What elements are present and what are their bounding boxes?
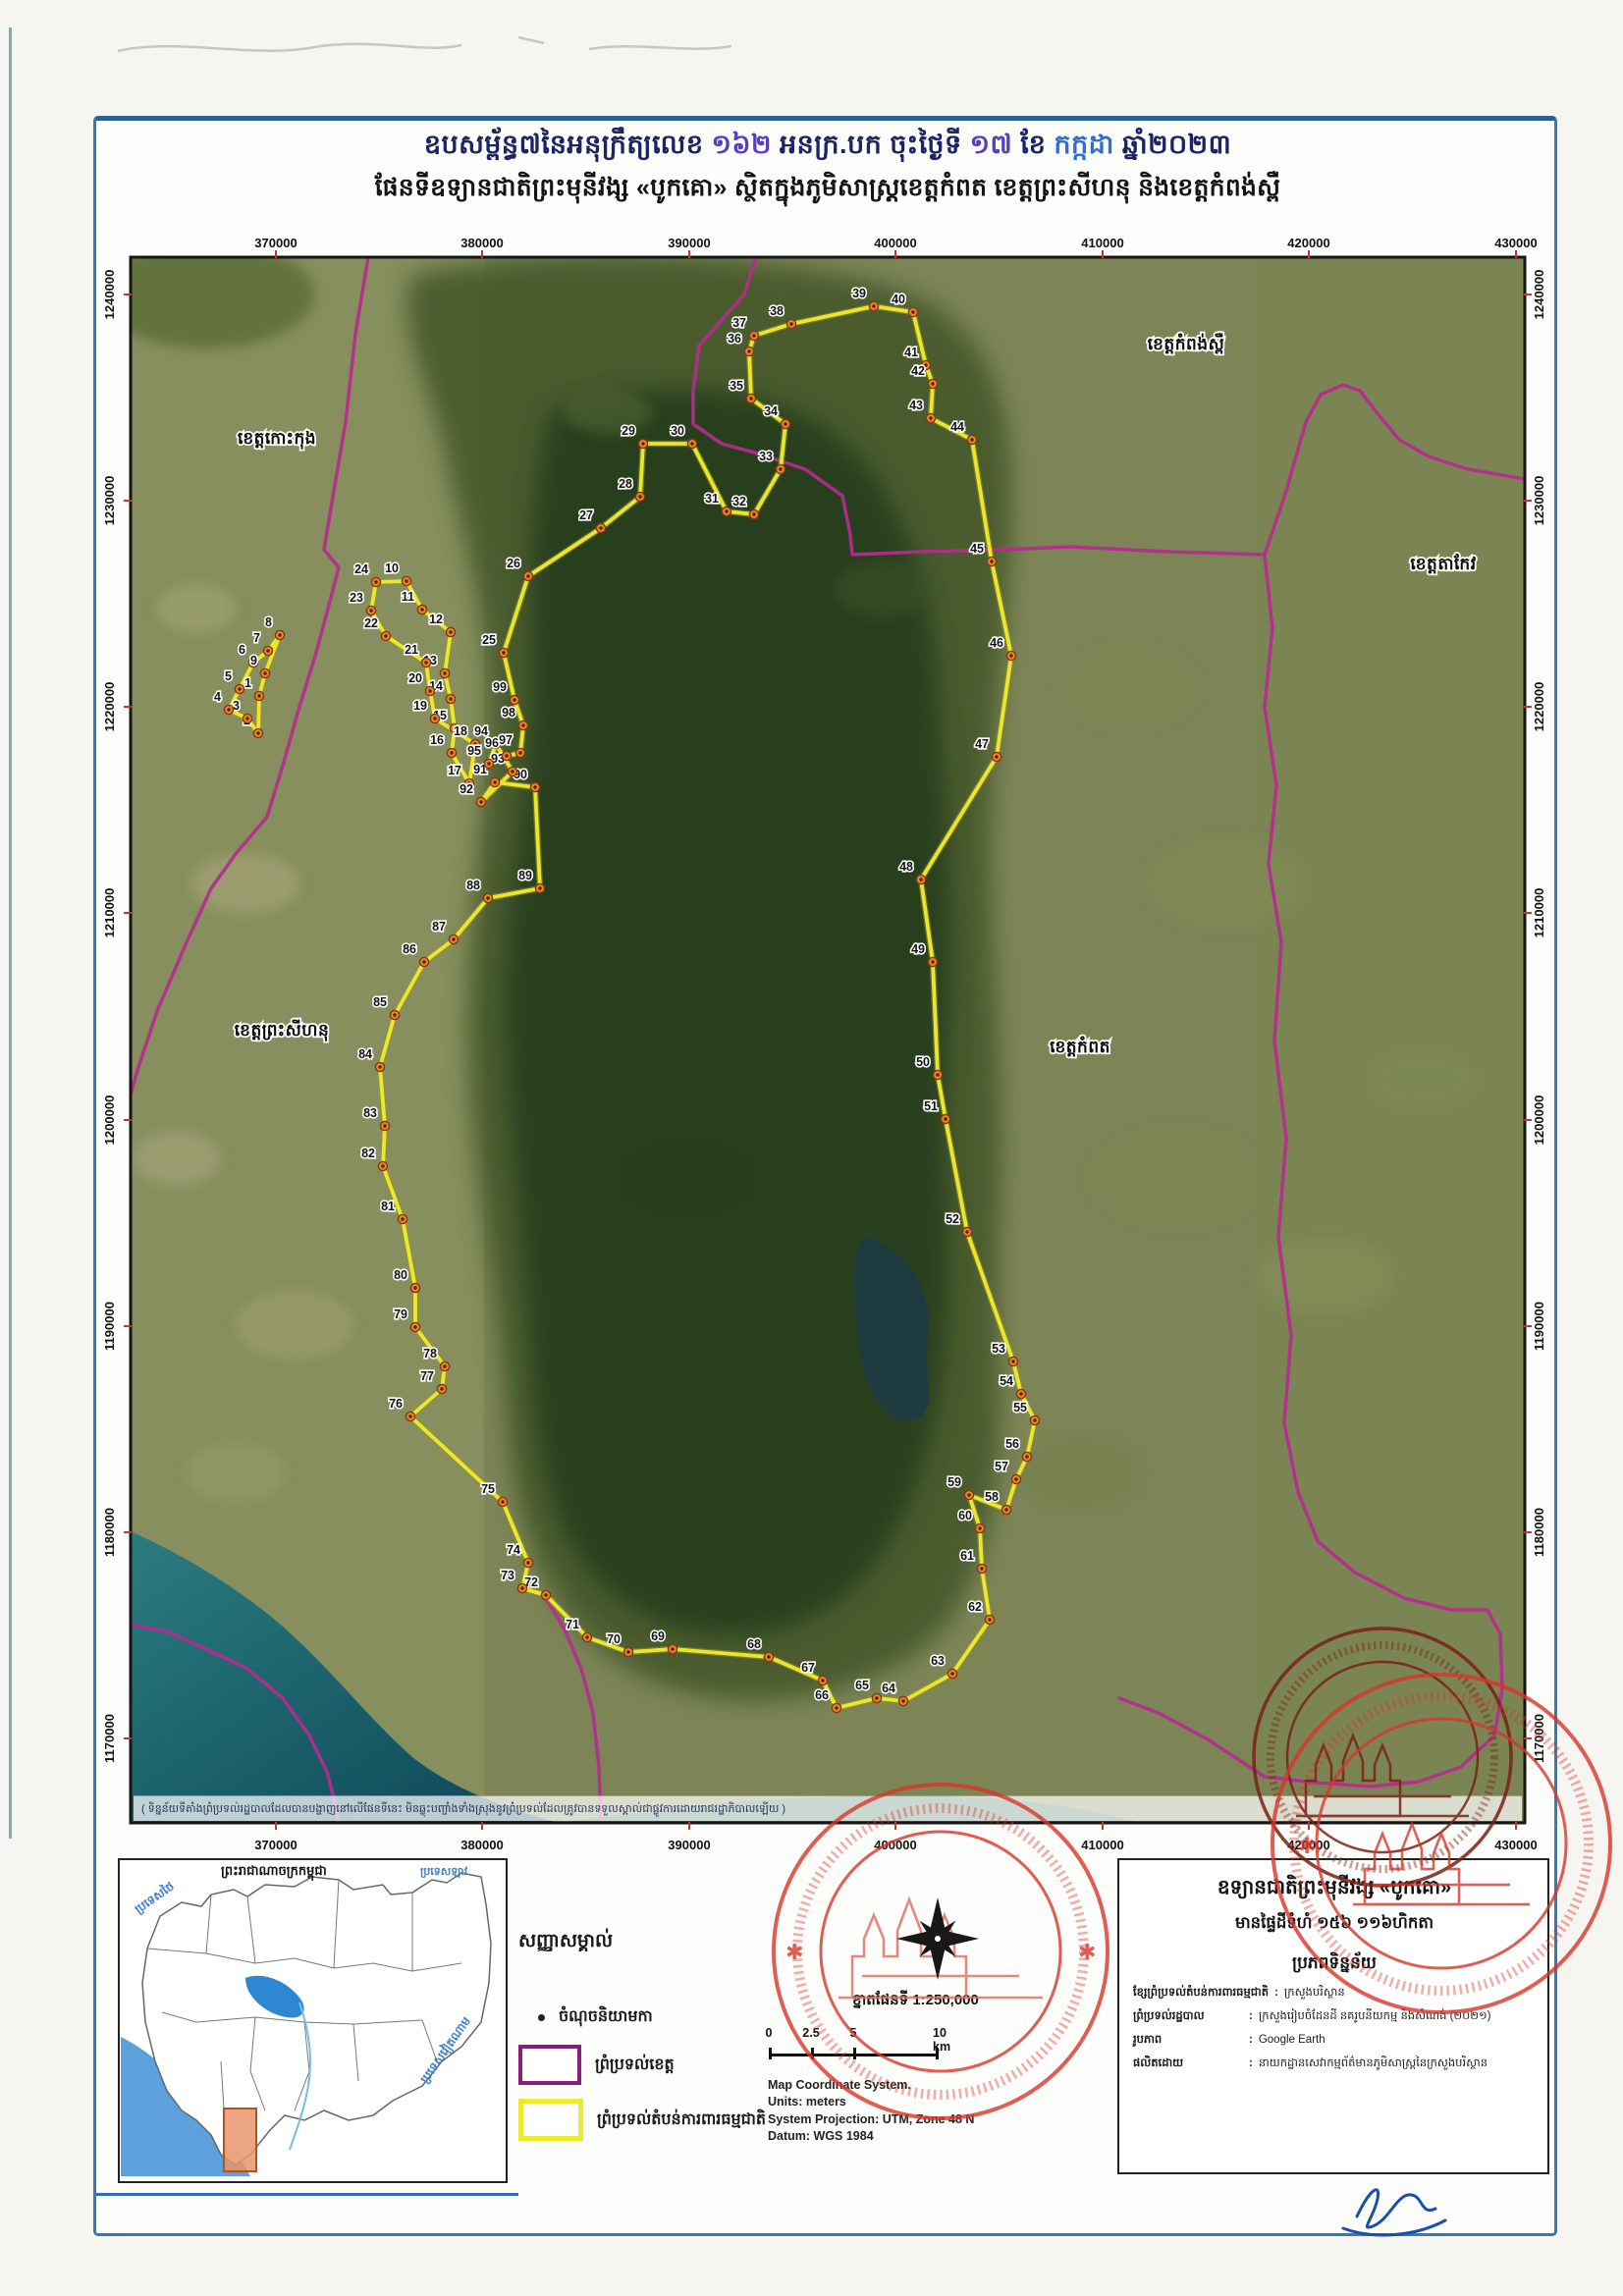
y-axis-label: 1180000 (1532, 1508, 1546, 1557)
province-label: ខេត្តតាកែវ (1410, 553, 1476, 574)
boundary-point-label: 52 (946, 1212, 959, 1226)
boundary-point-label: 56 (1005, 1437, 1019, 1451)
boundary-point-label: 53 (992, 1342, 1005, 1356)
boundary-point-label: 43 (909, 399, 923, 412)
boundary-point-label: 61 (960, 1549, 974, 1563)
y-axis-label: 1200000 (102, 1095, 117, 1146)
boundary-point-label: 62 (968, 1600, 982, 1614)
boundary-point-core (1033, 1418, 1036, 1421)
boundary-point-core (725, 509, 728, 512)
boundary-point-label: 19 (413, 699, 427, 713)
data-source-header: ប្រភពទិន្នន័យ (1133, 1952, 1536, 1977)
y-axis-label: 1200000 (1532, 1095, 1546, 1146)
province-label: ខេត្តកំពត (1050, 1036, 1110, 1057)
boundary-point-label: 24 (354, 562, 368, 576)
boundary-point-core (538, 886, 541, 889)
province-label: ខេត្តកោះកុង (238, 429, 316, 450)
boundary-point-core (544, 1593, 547, 1596)
x-axis-label: 380000 (460, 236, 503, 250)
source-value: ក្រសួងបរិស្ថាន (1284, 1986, 1536, 2001)
boundary-point-label: 25 (482, 633, 496, 647)
boundary-point-core (599, 526, 602, 529)
boundary-point-label: 78 (423, 1347, 437, 1361)
boundary-point-label: 34 (764, 404, 778, 418)
boundary-point-label: 75 (481, 1482, 495, 1496)
y-axis-label: 1230000 (102, 476, 117, 526)
boundary-point-label: 73 (501, 1569, 514, 1582)
boundary-point-core (641, 442, 644, 445)
y-axis-label: 1210000 (1532, 888, 1546, 938)
boundary-point-label: 22 (364, 616, 378, 630)
boundary-point-core (433, 717, 436, 720)
boundary-point-label: 67 (801, 1661, 815, 1675)
boundary-point-core (752, 512, 755, 515)
boundary-point-core (518, 751, 521, 754)
source-row-admin-boundary: ព្រំប្រទល់រដ្ឋបាល : ក្រសួងរៀបចំដែនដី នគរ… (1133, 2009, 1536, 2024)
boundary-point-core (901, 1699, 904, 1702)
scale-bar: 0 2.5 5 10 km (769, 2026, 965, 2061)
boundary-point-core (1009, 654, 1012, 657)
x-axis-label: 410000 (1081, 236, 1123, 250)
boundary-point-label: 86 (403, 942, 416, 956)
source-value: នាយកដ្ឋានសេវាកម្មព័ត៌មានភូមិសាស្ត្រនៃក្រ… (1259, 2056, 1536, 2071)
survey-point-icon (538, 2014, 545, 2021)
boundary-point-label: 12 (429, 613, 443, 626)
boundary-point-label: 69 (651, 1629, 665, 1643)
boundary-point-core (671, 1647, 674, 1650)
boundary-point-core (990, 560, 993, 562)
boundary-point-core (749, 397, 752, 400)
legend-item-protected-boundary: ព្រំប្រទល់តំបន់ការពារធម្មជាតិ (518, 2099, 766, 2141)
boundary-point-core (384, 634, 387, 637)
boundary-point-core (872, 304, 875, 307)
boundary-point-core (422, 960, 425, 963)
boundary-point-core (626, 1650, 629, 1653)
boundary-point-core (875, 1696, 878, 1699)
boundary-point-label: 21 (405, 643, 418, 657)
boundary-point-core (413, 1325, 416, 1328)
boundary-point-label: 4 (214, 690, 221, 704)
boundary-point-core (381, 1164, 384, 1167)
boundary-point-label: 42 (911, 364, 925, 378)
boundary-point-core (911, 310, 914, 313)
boundary-point-label: 37 (732, 316, 746, 330)
y-axis-label: 1180000 (102, 1508, 117, 1557)
boundary-point-core (1014, 1477, 1017, 1480)
y-axis-label: 1170000 (1532, 1714, 1546, 1763)
province-label: ខេត្តព្រះសីហនុ (235, 1019, 329, 1041)
boundary-point-core (970, 438, 973, 441)
boundary-point-label: 64 (882, 1682, 895, 1695)
park-name: ឧទ្យានជាតិព្រះមុនីវង្ស «បូកគោ» (1133, 1874, 1536, 1903)
boundary-point-core (752, 334, 755, 337)
boundary-point-core (929, 416, 932, 419)
boundary-point-label: 66 (815, 1688, 829, 1702)
x-axis-label: 370000 (254, 1838, 297, 1852)
boundary-point-label: 60 (958, 1509, 972, 1522)
boundary-point-label: 74 (507, 1543, 520, 1557)
boundary-point-label: 41 (904, 346, 918, 359)
boundary-point-core (931, 960, 934, 963)
boundary-point-label: 59 (947, 1475, 961, 1489)
y-axis-label: 1190000 (1532, 1302, 1546, 1351)
boundary-point-core (526, 574, 529, 577)
boundary-point-label: 97 (499, 733, 513, 747)
x-axis-label: 420000 (1287, 1838, 1329, 1852)
boundary-point-core (245, 717, 248, 720)
boundary-point-core (1011, 1360, 1014, 1362)
boundary-point-label: 92 (460, 782, 473, 796)
boundary-point-core (978, 1526, 981, 1529)
boundary-point-label: 33 (759, 450, 773, 463)
x-axis-label: 430000 (1494, 1838, 1537, 1852)
boundary-point-core (449, 697, 452, 700)
boundary-point-label: 47 (975, 737, 989, 751)
boundary-point-label: 23 (350, 591, 363, 605)
boundary-point-core (919, 878, 922, 881)
boundary-point-core (526, 1561, 529, 1564)
boundary-point-core (393, 1013, 396, 1016)
scale-tick (769, 2048, 772, 2059)
y-axis-label: 1210000 (102, 888, 117, 938)
boundary-point-label: 46 (990, 636, 1003, 650)
boundary-point-core (936, 1073, 939, 1076)
boundary-point-core (950, 1672, 953, 1675)
boundary-point-core (486, 896, 489, 899)
x-axis-label: 400000 (874, 236, 916, 250)
boundary-point-core (256, 731, 259, 734)
boundary-point-label: 49 (911, 942, 925, 956)
boundary-point-core (443, 671, 446, 674)
boundary-point-core (690, 442, 693, 445)
pencil-marks (118, 37, 731, 51)
boundary-point-label: 40 (892, 293, 905, 306)
legend-label: ព្រំប្រទល់ខេត្ត (595, 2054, 675, 2077)
boundary-point-label: 68 (747, 1637, 761, 1651)
y-axis-label: 1190000 (102, 1302, 117, 1351)
scale-tick (811, 2048, 814, 2059)
boundary-point-label: 71 (566, 1618, 579, 1631)
boundary-point-core (487, 762, 490, 765)
boundary-point-label: 80 (394, 1268, 407, 1282)
park-info-box: ឧទ្យានជាតិព្រះមុនីវង្ស «បូកគោ» មានផ្ទៃដី… (1117, 1858, 1549, 2174)
boundary-point-core (263, 671, 266, 674)
boundary-point-label: 29 (622, 424, 635, 438)
boundary-point-core (965, 1230, 968, 1233)
boundary-point-label: 35 (730, 379, 743, 393)
legend-item-survey-point: ចំណុចនិយាមកា (524, 2005, 653, 2029)
source-label: រូបភាព (1133, 2033, 1243, 2048)
park-area: មានផ្ទៃដីទំហំ ១៥៦ ១១៦ហិកតា (1133, 1913, 1536, 1937)
boundary-point-label: 51 (924, 1099, 938, 1113)
boundary-point-label: 6 (239, 643, 245, 657)
boundary-point-label: 83 (363, 1106, 377, 1120)
boundary-point-label: 31 (705, 492, 719, 506)
boundary-point-core (511, 770, 514, 773)
source-label: ព្រំប្រទល់រដ្ឋបាល (1133, 2009, 1243, 2024)
boundary-point-label: 55 (1013, 1401, 1027, 1415)
boundary-point-label: 45 (970, 542, 984, 556)
meta-projection: System Projection: UTM, Zone 48 N (768, 2111, 1092, 2128)
boundary-point-label: 82 (361, 1147, 375, 1160)
source-value: Google Earth (1259, 2033, 1536, 2048)
boundary-point-label: 32 (732, 495, 746, 508)
scale-tick (853, 2048, 856, 2059)
boundary-point-core (413, 1286, 416, 1289)
boundary-point-core (257, 694, 260, 697)
legend-item-province-boundary: ព្រំប្រទល់ខេត្ត (518, 2045, 675, 2085)
boundary-point-label: 57 (995, 1460, 1008, 1473)
boundary-point-label: 30 (671, 424, 684, 438)
boundary-point-core (443, 1364, 446, 1367)
boundary-point-core (520, 1586, 523, 1589)
boundary-point-core (408, 1415, 411, 1417)
boundary-point-label: 38 (770, 304, 784, 318)
x-axis-label: 390000 (668, 236, 710, 250)
boundary-point-label: 48 (899, 860, 913, 874)
boundary-point-core (835, 1706, 838, 1709)
boundary-point-core (988, 1618, 991, 1621)
boundary-point-core (501, 1500, 504, 1503)
x-axis-label: 430000 (1494, 236, 1537, 250)
boundary-point-core (424, 661, 427, 664)
boundary-point-label: 27 (579, 508, 593, 522)
coordinate-system-block: Map Coordinate System. Units: meters Sys… (768, 2077, 1092, 2145)
source-label: ផលិតដោយ (1133, 2056, 1243, 2071)
boundary-point-label: 95 (467, 744, 481, 758)
source-row-protected-boundary: ខ្សែព្រំប្រទល់តំបន់ការពារធម្មជាតិ : ក្រស… (1133, 1986, 1536, 2001)
inset-label-laos: ប្រទេសឡាវ (420, 1865, 467, 1881)
boundary-point-label: 36 (728, 332, 741, 346)
x-axis-label: 410000 (1081, 1838, 1123, 1852)
boundary-point-core (401, 1217, 404, 1220)
province-label: ខេត្តកំពង់ស្ពឺ (1148, 333, 1225, 354)
boundary-point-core (452, 937, 455, 940)
y-axis-label: 1220000 (1532, 682, 1546, 732)
protected-boundary-swatch (518, 2099, 583, 2141)
boundary-point-core (405, 579, 407, 582)
boundary-point-label: 89 (518, 869, 532, 882)
map-disclaimer: ( ទិន្នន័យទីតាំងព្រំប្រទល់រដ្ឋបាលដែលបានប… (134, 1795, 1522, 1821)
boundary-point-label: 63 (931, 1654, 945, 1668)
legend: សញ្ញាសម្គាល់ ចំណុចនិយាមកា ព្រំប្រទល់ខេត្… (518, 1929, 803, 1956)
boundary-point-label: 70 (607, 1632, 621, 1646)
source-label: ខ្សែព្រំប្រទល់តំបន់ការពារធម្មជាតិ (1133, 1986, 1269, 2001)
boundary-point-core (450, 751, 453, 754)
boundary-point-label: 77 (420, 1369, 434, 1383)
boundary-point-core (227, 708, 230, 711)
x-axis-label: 380000 (460, 1838, 503, 1852)
boundary-point-core (378, 1065, 381, 1068)
boundary-point-core (784, 422, 786, 425)
boundary-point-core (502, 651, 505, 654)
divider-line (96, 2193, 518, 2196)
source-row-produced-by: ផលិតដោយ : នាយកដ្ឋានសេវាកម្មព័ត៌មានភូមិសា… (1133, 2056, 1536, 2071)
boundary-point-label: 17 (448, 764, 461, 777)
boundary-point-core (980, 1567, 983, 1570)
scale-label-khmer: ខ្នាតផែនទី (852, 1992, 908, 2008)
boundary-point-label: 54 (1000, 1374, 1013, 1388)
boundary-point-core (374, 580, 377, 583)
scanned-map-sheet: ឧបសម្ព័ន្ធ៧នៃអនុក្រឹត្យលេខ ១៦២ អនក្រ.បក … (0, 0, 1623, 2296)
boundary-point-core (449, 630, 452, 633)
scale-bar-2-5: 2.5 (802, 2026, 819, 2040)
source-row-imagery: រូបភាព : Google Earth (1133, 2033, 1536, 2048)
boundary-point-label: 98 (502, 706, 515, 720)
x-axis-label: 370000 (254, 236, 297, 250)
boundary-point-core (821, 1679, 824, 1682)
boundary-point-label: 9 (250, 654, 257, 667)
boundary-point-label: 44 (950, 420, 964, 434)
legend-header: សញ្ញាសម្គាល់ (518, 1929, 803, 1956)
boundary-point-core (266, 649, 269, 652)
province-boundary-swatch (518, 2045, 581, 2085)
colon: : (1243, 2056, 1259, 2071)
meta-units: Units: meters (768, 2094, 1092, 2110)
boundary-point-label: 76 (389, 1397, 403, 1411)
y-axis-label: 1240000 (1532, 270, 1546, 320)
scale-label: ខ្នាតផែនទី 1:250,000 (852, 1991, 979, 2012)
boundary-point-label: 5 (225, 669, 232, 683)
boundary-point-core (1025, 1455, 1028, 1458)
boundary-point-label: 7 (253, 631, 260, 645)
boundary-point-core (383, 1124, 386, 1127)
boundary-point-label: 18 (454, 724, 467, 738)
boundary-point-label: 65 (855, 1679, 869, 1692)
boundary-point-label: 58 (985, 1490, 999, 1504)
boundary-point-core (967, 1493, 970, 1496)
boundary-point-label: 10 (385, 561, 399, 575)
meta-datum: Datum: WGS 1984 (768, 2128, 1092, 2145)
scale-bar-5: 5 (850, 2026, 857, 2040)
boundary-point-core (585, 1635, 588, 1638)
satellite-imagery: 1234567891011121314151617181920212223242… (98, 240, 1525, 1823)
y-axis-label: 1170000 (102, 1714, 117, 1763)
colon: : (1269, 1986, 1284, 2001)
boundary-point-label: 96 (485, 736, 499, 750)
boundary-point-core (369, 609, 372, 612)
boundary-point-label: 11 (402, 590, 414, 604)
boundary-point-core (521, 723, 524, 726)
boundary-point-core (944, 1117, 947, 1120)
boundary-point-core (995, 755, 998, 758)
boundary-point-core (533, 785, 536, 788)
boundary-point-label: 8 (265, 615, 272, 629)
meta-coordinate-system: Map Coordinate System. (768, 2077, 1092, 2094)
boundary-point-core (440, 1387, 443, 1390)
boundary-point-label: 99 (493, 680, 507, 694)
boundary-point-core (278, 633, 281, 636)
boundary-point-label: 50 (916, 1055, 930, 1069)
source-value: ក្រសួងរៀបចំដែនដី នគរូបនីយកម្ម និងសំណង់ (… (1259, 2009, 1536, 2024)
inset-map-box (118, 1858, 508, 2183)
boundary-point-core (747, 349, 750, 352)
y-axis-label: 1240000 (102, 270, 117, 320)
boundary-point-core (493, 780, 496, 783)
legend-label: ចំណុចនិយាមកា (559, 2005, 653, 2029)
boundary-point-core (767, 1655, 770, 1658)
x-axis-label: 400000 (874, 1838, 916, 1852)
legend-label: ព្រំប្រទល់តំបន់ការពារធម្មជាតិ (597, 2109, 766, 2132)
y-axis-label: 1220000 (102, 682, 117, 732)
x-axis-label: 420000 (1287, 236, 1329, 250)
boundary-point-label: 26 (507, 557, 520, 570)
scale-bar-0: 0 (766, 2026, 773, 2040)
colon: : (1243, 2033, 1259, 2048)
boundary-point-core (420, 608, 423, 611)
boundary-point-core (513, 698, 515, 701)
boundary-point-core (428, 689, 431, 692)
boundary-point-core (238, 687, 241, 690)
boundary-point-label: 85 (373, 995, 387, 1009)
boundary-point-label: 79 (394, 1308, 407, 1321)
boundary-point-core (1004, 1508, 1007, 1511)
boundary-point-core (638, 495, 641, 498)
scale-ratio: 1:250,000 (912, 1992, 979, 2008)
boundary-point-label: 84 (358, 1047, 372, 1061)
boundary-point-core (505, 754, 508, 757)
boundary-point-core (479, 800, 482, 803)
inset-title: ព្រះរាជាណាចក្រកម្ពុជា (221, 1863, 327, 1882)
boundary-point-label: 81 (381, 1200, 395, 1213)
boundary-point-label: 16 (430, 733, 444, 747)
boundary-point-label: 1 (244, 676, 251, 690)
boundary-point-label: 28 (619, 477, 632, 491)
boundary-point-core (931, 382, 934, 385)
boundary-point-label: 87 (432, 920, 446, 934)
boundary-point-core (789, 322, 792, 325)
boundary-point-label: 39 (852, 287, 866, 300)
x-axis-label: 390000 (668, 1838, 710, 1852)
scale-tick (936, 2048, 939, 2059)
boundary-point-label: 20 (408, 671, 422, 685)
colon: : (1243, 2009, 1259, 2024)
y-axis-label: 1230000 (1532, 476, 1546, 526)
boundary-point-label: 88 (466, 879, 480, 892)
boundary-point-core (779, 467, 782, 470)
boundary-point-core (1019, 1392, 1022, 1395)
